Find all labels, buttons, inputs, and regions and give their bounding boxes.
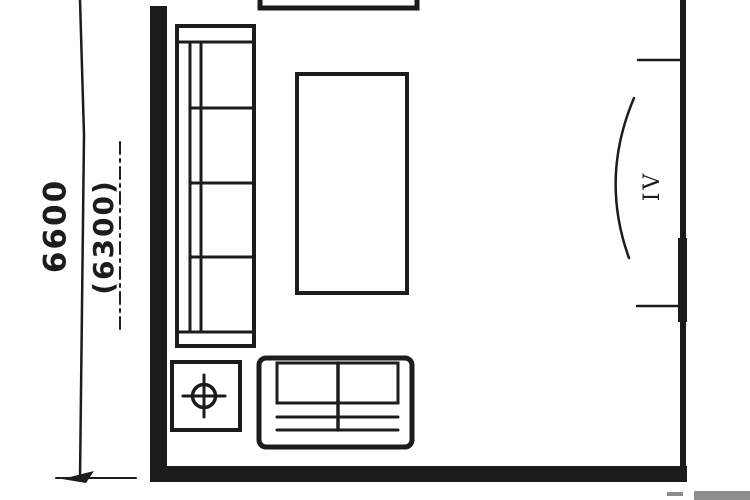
dimension-label-overall: 6600 <box>41 179 72 273</box>
bottom-right-strip <box>694 491 750 500</box>
dimension-label-interior: (6300) <box>90 179 118 295</box>
loveseat <box>259 358 412 447</box>
coffee-table <box>297 74 407 293</box>
bottom-wall <box>150 466 687 482</box>
bottom-right-strip-marks <box>667 492 683 496</box>
right-wall-thick-segment <box>678 238 687 322</box>
door-swing-arc <box>616 98 634 258</box>
side-table-lamp <box>172 362 240 430</box>
left-wall <box>150 6 167 482</box>
loveseat-cushion-left <box>277 363 338 403</box>
floor-plan: 6600 (6300) IV <box>0 0 750 500</box>
top-cabinet <box>260 0 417 8</box>
door-label: IV <box>642 171 664 202</box>
right-wall <box>680 0 686 466</box>
dimension-line <box>80 0 84 478</box>
loveseat-cushion-right <box>338 363 398 403</box>
sofa-left <box>177 26 254 346</box>
